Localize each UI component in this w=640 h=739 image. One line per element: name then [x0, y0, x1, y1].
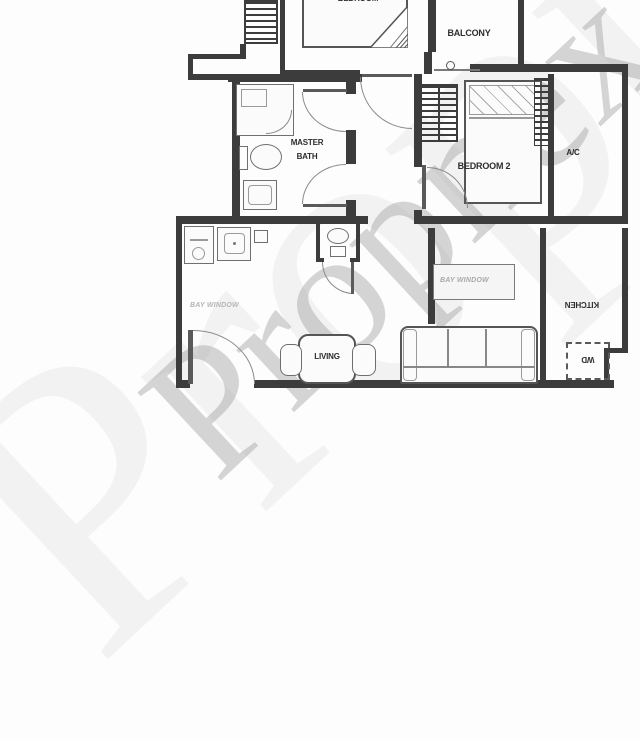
wardrobe-divider [438, 84, 440, 142]
wc2-toilet-tank-icon [330, 246, 346, 257]
window-bedroom2-icon [534, 78, 550, 146]
sliding-door-handle-icon [446, 61, 455, 70]
counter-line [190, 239, 208, 241]
wall-bath-right-c [346, 200, 356, 222]
wall-outer-right-upper [622, 64, 628, 224]
sofa-cushion-divider [447, 329, 449, 367]
wall-mid-horizontal-left [176, 216, 368, 224]
wc2-door-arc [322, 262, 354, 294]
room-label-master-bath: MASTER BATH [278, 136, 336, 164]
room-label-kitchen: KITCHEN [544, 300, 620, 309]
blanket-fold-icon [362, 6, 408, 48]
room-label-living: LIVING [300, 352, 354, 361]
wc2-door-leaf [351, 262, 354, 294]
wall-wc-right [356, 224, 360, 262]
room-label-ac: A/C [556, 148, 590, 157]
wall-outer-left [176, 216, 182, 388]
bath-door-arc-upper [302, 92, 346, 132]
sofa-armrest-right [521, 329, 535, 381]
room-label-balcony: BALCONY [438, 28, 500, 38]
wall-segment [188, 54, 246, 59]
counter-unit-c [254, 230, 268, 243]
bath-door-leaf-lower [303, 204, 347, 207]
wall-bath-right-a [346, 82, 356, 94]
washer-dryer-label: WD [570, 355, 606, 364]
wall-bath-right-b [346, 130, 356, 164]
basin-icon [192, 247, 205, 260]
wall-outer-right-mid [622, 228, 628, 352]
wall-bedroom2-left-b [414, 210, 422, 224]
sink-drain-dot [233, 242, 236, 245]
sliding-door-track [434, 69, 480, 71]
annotation-bay-window-left: BAY WINDOW [190, 302, 239, 309]
pillow-icon [469, 85, 535, 115]
bath-door-leaf-upper [303, 89, 347, 92]
toilet-cistern-icon [239, 146, 248, 170]
hall-door-leaf [362, 74, 412, 77]
hall-door-arc [360, 77, 412, 129]
room-label-bedroom2: BEDROOM 2 [452, 161, 516, 171]
annotation-bay-window-right: BAY WINDOW [440, 277, 489, 284]
bedroom2-door-arc [427, 167, 468, 208]
room-label-bedroom: BEDROOM [330, 0, 386, 3]
wall-bedroom-balcony-divider [428, 0, 436, 52]
master-bath-line1: MASTER [291, 138, 324, 147]
wall-ac-top [518, 64, 628, 72]
bed-sheet-line [469, 117, 535, 119]
chair-right [352, 344, 376, 376]
sofa-back-line [403, 366, 535, 368]
sofa [400, 326, 538, 384]
wall-segment [424, 52, 432, 74]
sink-inner-icon [248, 185, 272, 205]
wc2-toilet-bowl-icon [327, 228, 349, 244]
wall-master-bedroom-bottom [282, 70, 360, 78]
wall-wc-left [316, 224, 320, 262]
wall-balcony-right [518, 0, 524, 68]
sofa-cushion-divider [485, 329, 487, 367]
bath-door-arc-lower [302, 164, 346, 204]
shower-tray [241, 89, 267, 107]
entrance-door-arc [193, 330, 255, 384]
sofa-armrest-left [403, 329, 417, 381]
floor-plan-image: { "watermark": { "text": "Propnex", "col… [0, 0, 640, 480]
chair-left [280, 344, 302, 376]
bedroom2-door-leaf [422, 165, 426, 209]
window-top-left-icon [244, 0, 278, 44]
wall-mid-horizontal-right [414, 216, 628, 224]
wall-master-bedroom-left [280, 0, 285, 74]
master-bath-line2: BATH [297, 152, 318, 161]
